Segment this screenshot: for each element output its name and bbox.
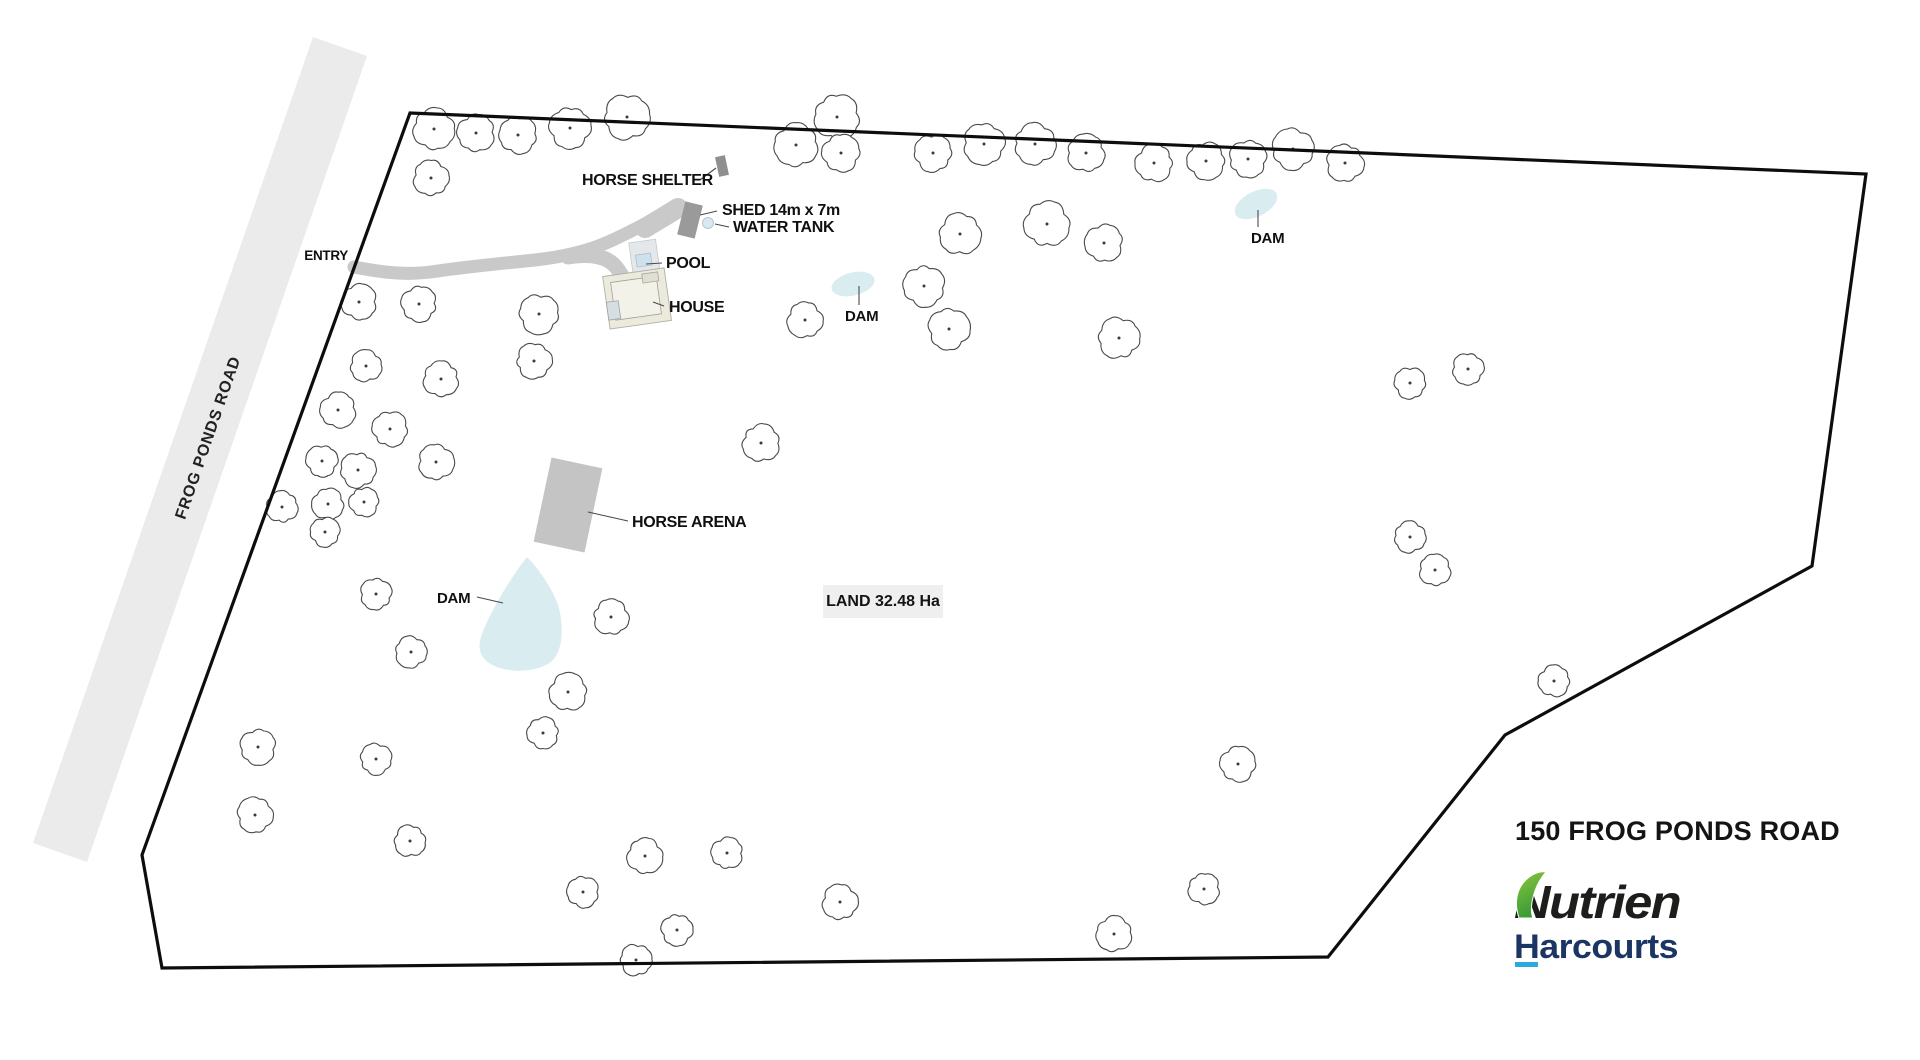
leader-line (715, 224, 729, 227)
tree-center-dot (440, 378, 443, 381)
tree-center-dot (375, 758, 378, 761)
tree-center-dot (610, 616, 613, 619)
tree-center-dot (1344, 162, 1347, 165)
tree-center-dot (281, 506, 284, 509)
tree-center-dot (1113, 933, 1116, 936)
leader-line (700, 211, 717, 215)
tree-center-dot (1434, 569, 1437, 572)
tree-center-dot (804, 319, 807, 322)
tree-center-dot (1085, 152, 1088, 155)
house-label: HOUSE (669, 300, 724, 316)
tree-center-dot (1153, 162, 1156, 165)
tree-center-dot (410, 651, 413, 654)
dam-northeast-label: DAM (1251, 231, 1284, 246)
tree-center-dot (358, 301, 361, 304)
entry-label: ENTRY (288, 249, 348, 263)
tree-center-dot (1103, 242, 1106, 245)
tree-center-dot (365, 365, 368, 368)
tree-center-dot (923, 285, 926, 288)
tree-center-dot (538, 313, 541, 316)
harcourts-underline (1515, 962, 1538, 967)
dam-shape-middle (829, 268, 877, 301)
driveway-widening (645, 208, 678, 228)
horse-shelter-label: HORSE SHELTER (582, 173, 713, 189)
water-tank-label: WATER TANK (733, 220, 834, 236)
dam-west-label: DAM (437, 591, 470, 606)
leader-line (588, 512, 628, 521)
tree-center-dot (321, 460, 324, 463)
tree-center-dot (569, 127, 572, 130)
horse-arena-shape (534, 458, 603, 553)
tree-center-dot (726, 852, 729, 855)
tree-center-dot (932, 152, 935, 155)
tree-center-dot (1205, 160, 1208, 163)
tree-center-dot (357, 469, 360, 472)
tree-center-dot (1409, 382, 1412, 385)
dam-middle-label: DAM (845, 309, 878, 324)
tree-center-dot (948, 328, 951, 331)
tree-center-dot (1237, 763, 1240, 766)
tree-center-dot (1203, 888, 1206, 891)
tree-center-dot (324, 531, 327, 534)
horse-shelter-shape (715, 155, 729, 177)
pool-label: POOL (666, 256, 710, 272)
tree-center-dot (327, 503, 330, 506)
tree-center-dot (542, 732, 545, 735)
land-area-badge: LAND 32.48 Ha (823, 585, 943, 618)
site-plan: ENTRY HORSE SHELTER SHED 14m x 7m WATER … (0, 0, 1920, 1060)
horse-arena-label: HORSE ARENA (632, 515, 746, 531)
tree-center-dot (433, 128, 436, 131)
tree-center-dot (644, 855, 647, 858)
tree-center-dot (409, 840, 412, 843)
tree-center-dot (375, 593, 378, 596)
tree-center-dot (567, 691, 570, 694)
house-porch-shape (642, 272, 659, 283)
tree-center-dot (959, 233, 962, 236)
tree-center-dot (1553, 680, 1556, 683)
tree-center-dot (1046, 223, 1049, 226)
tree-center-dot (582, 891, 585, 894)
dam-shape-northeast (1230, 182, 1282, 225)
tree-center-dot (626, 116, 629, 119)
tree-center-dot (533, 360, 536, 363)
tree-center-dot (1467, 368, 1470, 371)
dam-shape-west (480, 557, 562, 671)
tree-center-dot (839, 901, 842, 904)
shed-label: SHED 14m x 7m (722, 203, 840, 219)
tree-center-dot (435, 461, 438, 464)
house-wing-shape (606, 301, 620, 320)
tree-center-dot (430, 177, 433, 180)
water-tank-shape (703, 218, 714, 229)
tree-center-dot (389, 428, 392, 431)
tree-center-dot (1118, 337, 1121, 340)
tree-center-dot (836, 116, 839, 119)
tree-center-dot (1247, 158, 1250, 161)
tree-center-dot (257, 746, 260, 749)
nutrien-wordmark: Nutrien (1514, 876, 1680, 928)
tree-center-dot (676, 929, 679, 932)
tree-center-dot (517, 134, 520, 137)
tree-center-dot (1034, 143, 1037, 146)
page-title: 150 FROG PONDS ROAD (1515, 816, 1840, 847)
harcourts-wordmark: Harcourts (1514, 928, 1678, 966)
tree-center-dot (635, 959, 638, 962)
tree-center-dot (475, 132, 478, 135)
tree-center-dot (795, 144, 798, 147)
tree-center-dot (1409, 536, 1412, 539)
tree-center-dot (418, 303, 421, 306)
tree-center-dot (760, 442, 763, 445)
tree-center-dot (337, 409, 340, 412)
nutrien-harcourts-logo: Nutrien Harcourts (1514, 872, 1794, 972)
tree-center-dot (363, 501, 366, 504)
tree-center-dot (840, 152, 843, 155)
pool-water-shape (636, 253, 653, 267)
tree-center-dot (254, 814, 257, 817)
tree-center-dot (983, 143, 986, 146)
